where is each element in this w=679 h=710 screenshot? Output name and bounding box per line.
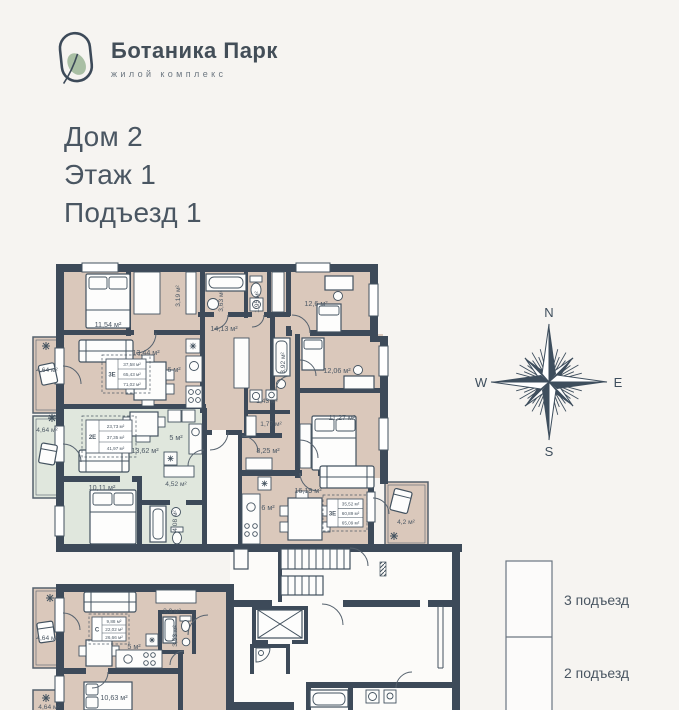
room-area-label: 11,54 м² <box>95 320 122 329</box>
compass-rose <box>491 324 607 440</box>
svg-text:2Е: 2Е <box>89 435 96 441</box>
svg-text:35,52 м²: 35,52 м² <box>342 502 360 507</box>
room-area-label: 4,64 м² <box>38 704 60 710</box>
room-area-label: 4,64 м² <box>36 367 58 374</box>
room-area-label: 5 м² <box>169 433 183 442</box>
room-area-label: 5 м² <box>127 642 141 651</box>
double-bed-icon <box>312 416 356 470</box>
single-bed-icon <box>317 304 341 332</box>
sofa-icon <box>320 466 374 488</box>
armchair-icon <box>38 443 57 465</box>
bathtub-icon <box>206 274 246 291</box>
svg-text:65,09 м²: 65,09 м² <box>342 520 360 525</box>
armchair-icon <box>38 363 58 386</box>
room-area-label: 3,19 м² <box>175 285 182 307</box>
washer-icon <box>366 690 379 703</box>
entrance-2-label: 2 подъезд <box>564 665 629 681</box>
svg-text:С: С <box>95 628 100 634</box>
sink-icon <box>208 299 219 310</box>
room-area-label: 12,6 м² <box>304 299 328 308</box>
room-area-label: 13,44 м² <box>132 348 160 357</box>
room-area-label: 10,63 м² <box>100 693 128 702</box>
elevator-icon <box>258 610 302 638</box>
compass-w: W <box>475 375 488 390</box>
wardrobe-icon <box>246 416 256 436</box>
wardrobe-icon <box>246 458 272 470</box>
room-area-label: 4,64 м² <box>36 635 58 642</box>
room-area-label: 13,62 м² <box>131 446 159 455</box>
room-area-label: 4,08 м² <box>172 510 179 532</box>
svg-text:37,35 м²: 37,35 м² <box>107 435 125 440</box>
room-area-label: 1,43 м² <box>256 398 278 405</box>
sink-icon <box>384 690 396 703</box>
svg-text:41,97 м²: 41,97 м² <box>107 446 125 451</box>
room-area-label: 4,2 м² <box>397 519 416 526</box>
apartment-info-box: 2Е 23,73 м² 37,35 м² 41,97 м² <box>82 416 136 457</box>
apartment-info-box: 3Е 35,52 м² 60,89 м² 65,09 м² <box>323 495 367 531</box>
floor-plan: 11,54 м² 3,19 м² 3,63 м² 1,95 м² 12,6 м²… <box>0 0 679 710</box>
room-area-label: 6 м² <box>261 503 275 512</box>
kitchen-counter-icon <box>186 339 202 408</box>
svg-text:9,88 м²: 9,88 м² <box>107 619 122 624</box>
wardrobe-icon <box>164 466 194 477</box>
wardrobe-icon <box>234 338 249 388</box>
svg-text:23,73 м²: 23,73 м² <box>107 424 125 429</box>
room-area-label: 11,27 м² <box>329 413 356 422</box>
single-bed-icon <box>302 338 324 370</box>
dining-table-icon <box>280 491 330 540</box>
sink-icon <box>182 638 190 646</box>
room-area-label: 12,06 м² <box>323 366 351 375</box>
room-area-label: 3,92 м² <box>280 352 287 374</box>
room-area-label: 6 м² <box>167 365 181 374</box>
double-bed-icon <box>90 490 136 544</box>
wardrobe-icon <box>272 272 284 312</box>
compass-n: N <box>544 305 553 320</box>
compass-e: E <box>614 375 623 390</box>
apartment-info-box: 3Е 37,58 м² 65,43 м² 71,02 м² <box>102 355 150 393</box>
compass-s: S <box>545 444 554 459</box>
apartment-info-box: С 9,88 м² 22,02 м² 26,66 м² <box>89 614 129 644</box>
entrance-3-label: 3 подъезд <box>564 592 629 608</box>
wardrobe-icon <box>300 424 311 468</box>
svg-text:22,02 м²: 22,02 м² <box>105 627 123 632</box>
room-area-label: 8,25 м² <box>256 446 280 455</box>
room-area-label: 4,52 м² <box>165 481 187 488</box>
room-area-label: 3,53 м² <box>172 625 179 647</box>
sofa-icon <box>84 592 136 612</box>
wardrobe-icon <box>134 272 160 314</box>
room-area-label: 1,77 м² <box>260 421 282 428</box>
wardrobe-icon <box>156 590 196 603</box>
bathtub-icon <box>150 506 166 542</box>
room-area-label: 3,63 м² <box>218 290 225 312</box>
room-area-label: 16,19 м² <box>294 486 322 495</box>
svg-text:26,66 м²: 26,66 м² <box>105 635 123 640</box>
room-area-label: 1,95 м² <box>254 291 261 313</box>
room-area-label: 3,9 м² <box>163 608 182 615</box>
svg-text:60,89 м²: 60,89 м² <box>342 511 360 516</box>
room-area-label: 10,11 м² <box>89 483 116 492</box>
svg-text:71,02 м²: 71,02 м² <box>123 382 141 387</box>
bathtub-icon <box>310 690 348 707</box>
room-area-label: 14,13 м² <box>210 324 238 333</box>
entrance-diagram: 3 подъезд 2 подъезд <box>506 561 629 710</box>
svg-text:37,58 м²: 37,58 м² <box>123 362 141 367</box>
page: { "colors":{"wall":"#3d4a59","beige":"#d… <box>0 0 679 710</box>
svg-text:65,43 м²: 65,43 м² <box>123 372 141 377</box>
room-area-label: 4,64 м² <box>36 427 58 434</box>
svg-text:3Е: 3Е <box>329 512 336 518</box>
wardrobe-icon <box>186 272 196 314</box>
svg-text:3Е: 3Е <box>108 373 115 379</box>
shaft-icon <box>234 549 248 569</box>
